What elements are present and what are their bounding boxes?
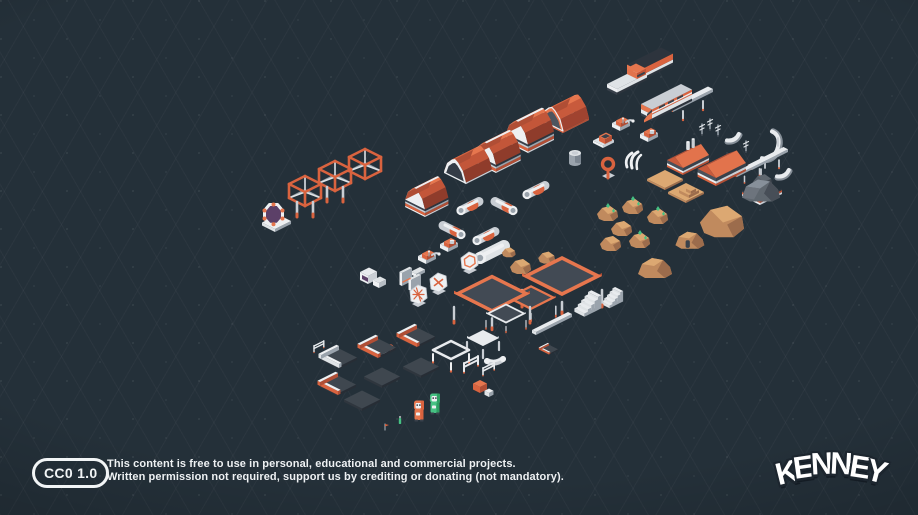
truss-cube-model <box>349 149 381 179</box>
large-tube-model <box>474 246 504 265</box>
storage-tank-model <box>569 150 581 166</box>
license-line-2: Written permission not required, support… <box>107 471 564 484</box>
antenna-model <box>708 119 713 131</box>
antenna-model <box>700 124 705 136</box>
terrain-tile-model <box>647 170 683 190</box>
floor-tile-model <box>344 391 380 412</box>
pipe-model <box>522 185 545 199</box>
table-model <box>467 330 499 358</box>
stairs-model <box>602 287 624 308</box>
ring-antenna-model <box>602 159 615 180</box>
rock-dome-model <box>638 258 672 278</box>
antenna-model <box>744 141 749 153</box>
pipe-model <box>495 201 518 215</box>
crystal-rock-model <box>622 196 643 214</box>
fence-model <box>463 356 479 374</box>
asset-scene <box>0 0 918 515</box>
floor-tile-small-model <box>539 343 558 355</box>
robot-machine-model <box>640 128 658 142</box>
rock-model <box>600 236 621 251</box>
kenney-logo: KENNEY <box>774 448 885 484</box>
small-machine-model <box>418 250 441 264</box>
floor-tile-model <box>319 345 358 369</box>
monorail-flatcar-model <box>607 64 647 96</box>
marker-model <box>385 424 389 430</box>
floor-tile-model <box>358 335 397 359</box>
track-curve-model <box>727 134 740 142</box>
terrain-tile-steps-model <box>668 183 704 203</box>
antenna-model <box>716 125 721 137</box>
hangar-model <box>405 176 448 217</box>
white-horns-model <box>626 152 641 169</box>
pipe-model <box>443 225 466 239</box>
truss-cube-model <box>289 176 321 217</box>
rock-model <box>510 259 531 274</box>
big-rock-model <box>700 206 744 238</box>
crystal-rock-model <box>647 206 668 224</box>
crystal-rock-model <box>629 230 650 248</box>
beam-model <box>532 312 572 335</box>
track-curve-model <box>777 170 790 178</box>
crystal-rock-model <box>597 203 618 221</box>
portal-gate-model <box>262 203 291 233</box>
astronaut-orange-model <box>414 401 424 422</box>
truss-cube-model <box>319 161 351 202</box>
stairs-model <box>574 290 601 317</box>
floor-tile-model <box>364 368 400 389</box>
license-line-1: This content is free to use in personal,… <box>107 458 564 471</box>
monorail-train-model <box>641 84 692 123</box>
gray-dome-model <box>742 180 782 206</box>
hex-panel-model <box>461 252 478 274</box>
small-machine-model <box>440 238 458 252</box>
crate-monitor-model <box>360 268 386 289</box>
hex-panel-model <box>430 273 447 295</box>
license-text: This content is free to use in personal,… <box>107 458 564 484</box>
floor-tile-model <box>397 324 436 348</box>
kenney-asset-showcase: { "page":{"width":918,"height":515}, "ba… <box>0 0 918 515</box>
pipe-model <box>456 201 479 215</box>
canister-model <box>399 416 401 424</box>
hangar-tunnel-model <box>444 146 492 184</box>
fence-model <box>313 341 324 353</box>
crates-model <box>473 380 494 397</box>
hex-pod-model <box>593 133 614 149</box>
floor-tile-model <box>318 372 357 396</box>
license-badge: CC0 1.0 <box>32 458 109 488</box>
robot-machine-model <box>612 117 635 131</box>
pipe-model <box>472 231 495 245</box>
astronaut-green-model <box>430 394 440 415</box>
rock-model <box>611 221 632 236</box>
rock-habitat-model <box>675 232 704 249</box>
